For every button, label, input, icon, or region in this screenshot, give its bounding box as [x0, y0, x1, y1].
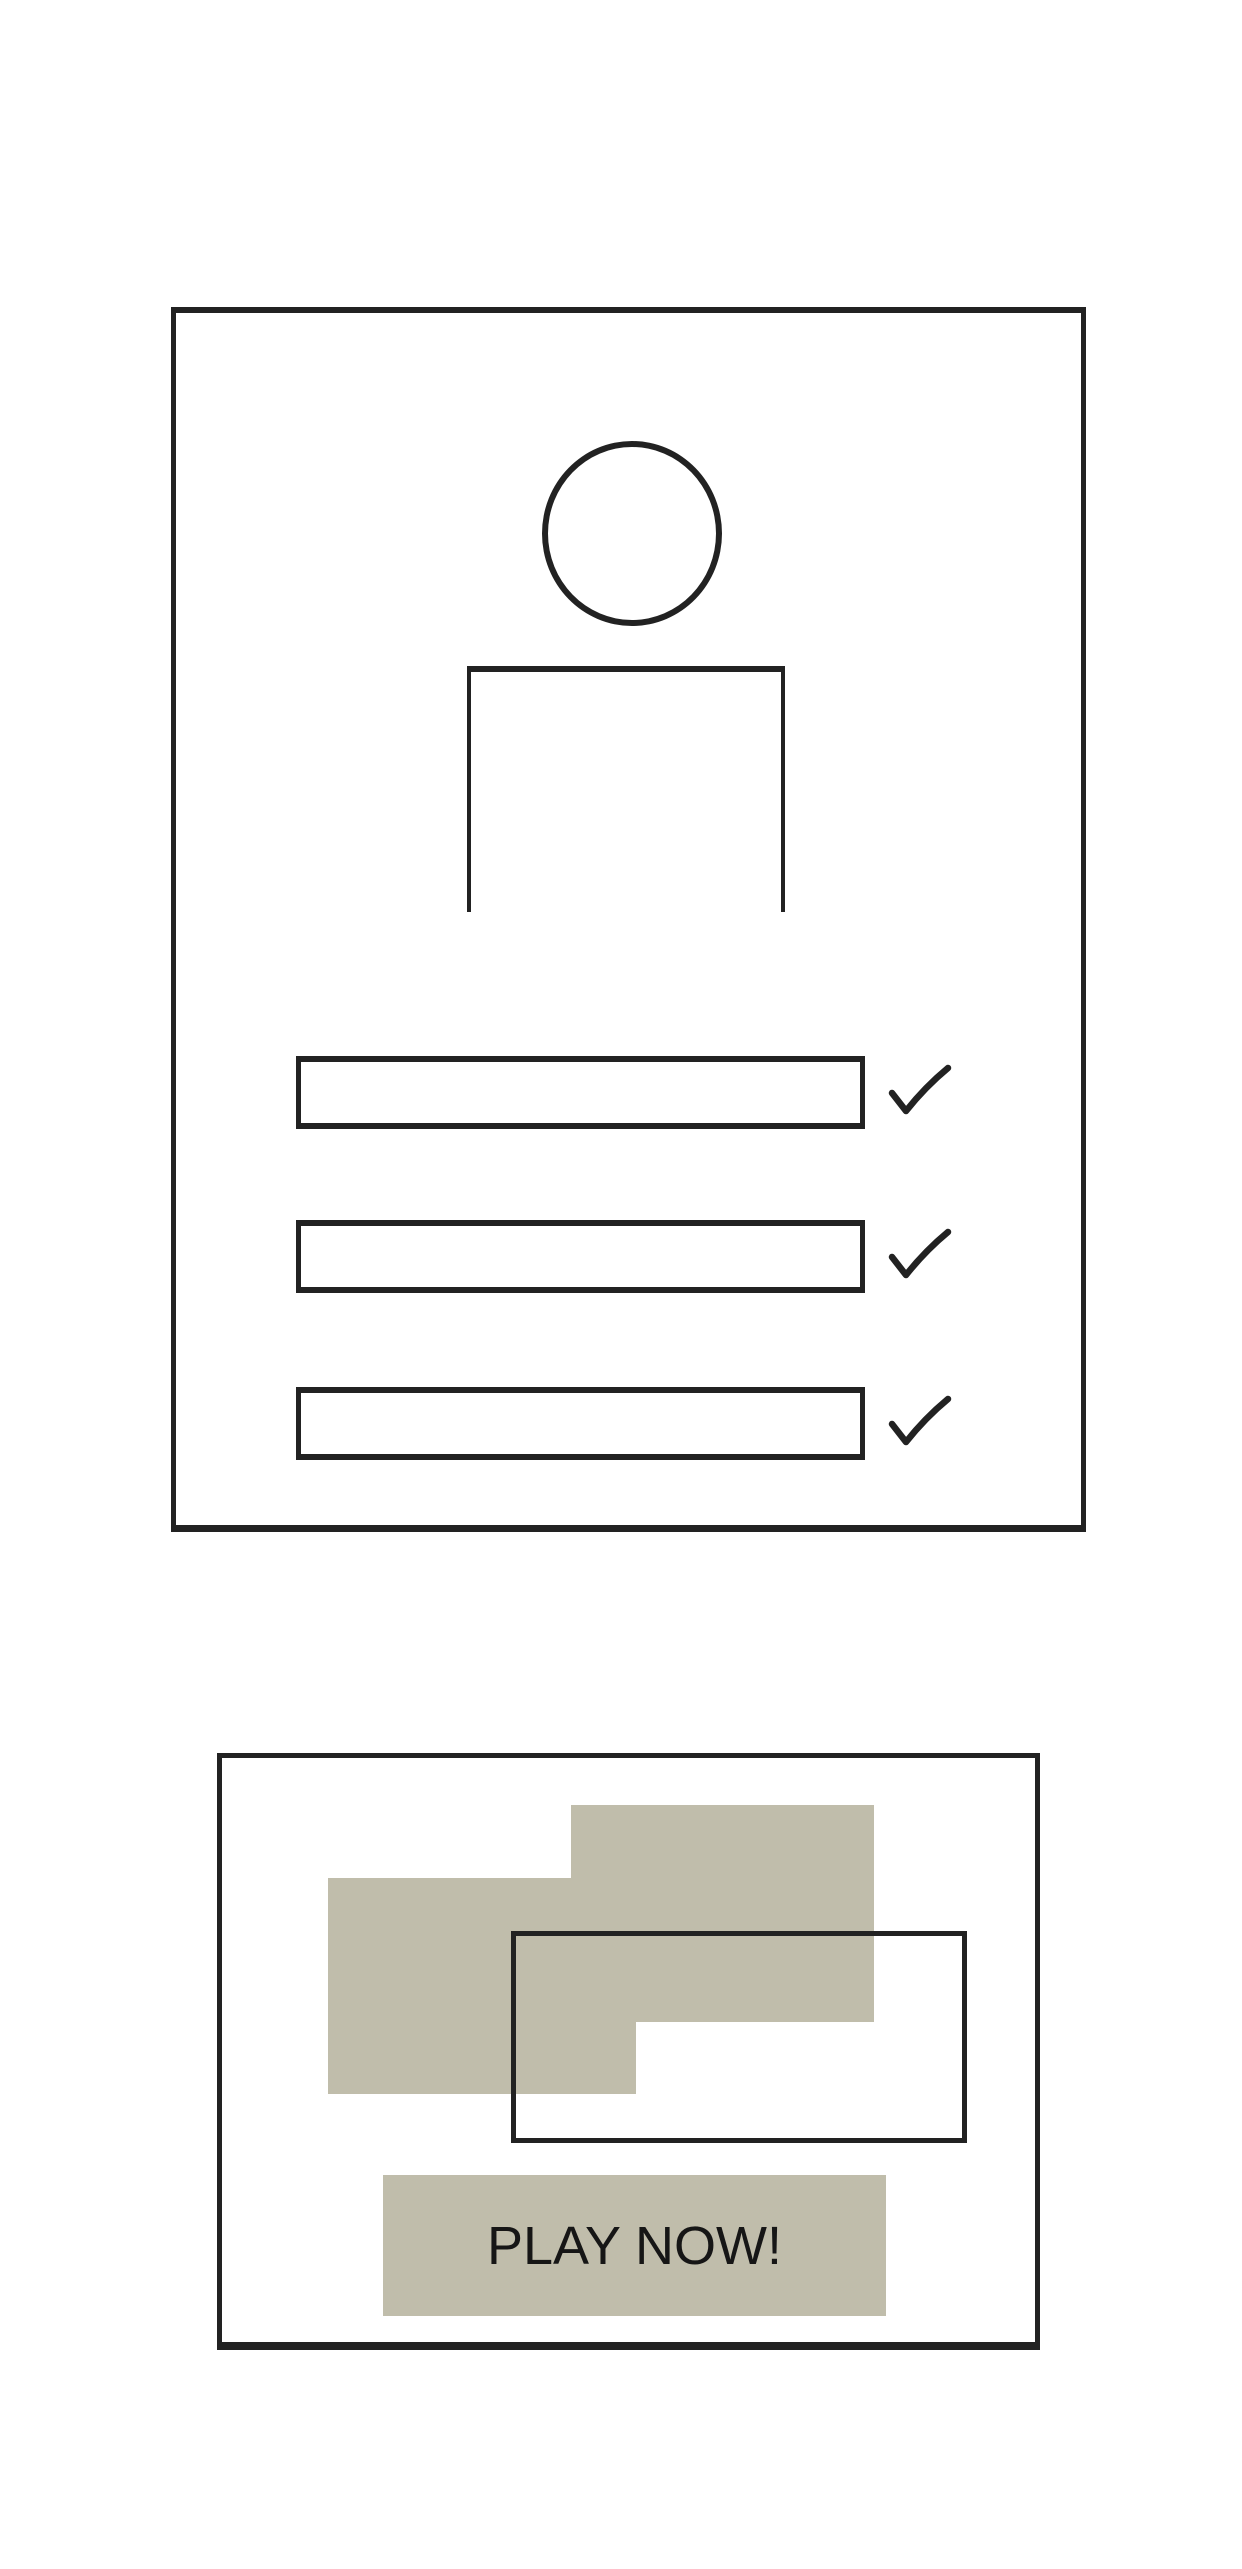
outline-rectangle-placeholder: [511, 1931, 967, 2143]
checklist-row[interactable]: [296, 1387, 865, 1460]
checkmark-icon: [889, 1229, 951, 1279]
checklist-row[interactable]: [296, 1056, 865, 1129]
input-field-placeholder[interactable]: [296, 1387, 865, 1460]
checkmark-icon: [889, 1396, 951, 1446]
input-field-placeholder[interactable]: [296, 1056, 865, 1129]
profile-card: [171, 307, 1086, 1532]
checklist: [176, 313, 1081, 1525]
game-promo-card: PLAY NOW!: [217, 1753, 1040, 2350]
play-now-button[interactable]: PLAY NOW!: [383, 2175, 886, 2316]
checkmark-icon: [889, 1065, 951, 1115]
wireframe-canvas: PLAY NOW!: [0, 0, 1242, 2569]
input-field-placeholder[interactable]: [296, 1220, 865, 1293]
checklist-row[interactable]: [296, 1220, 865, 1293]
